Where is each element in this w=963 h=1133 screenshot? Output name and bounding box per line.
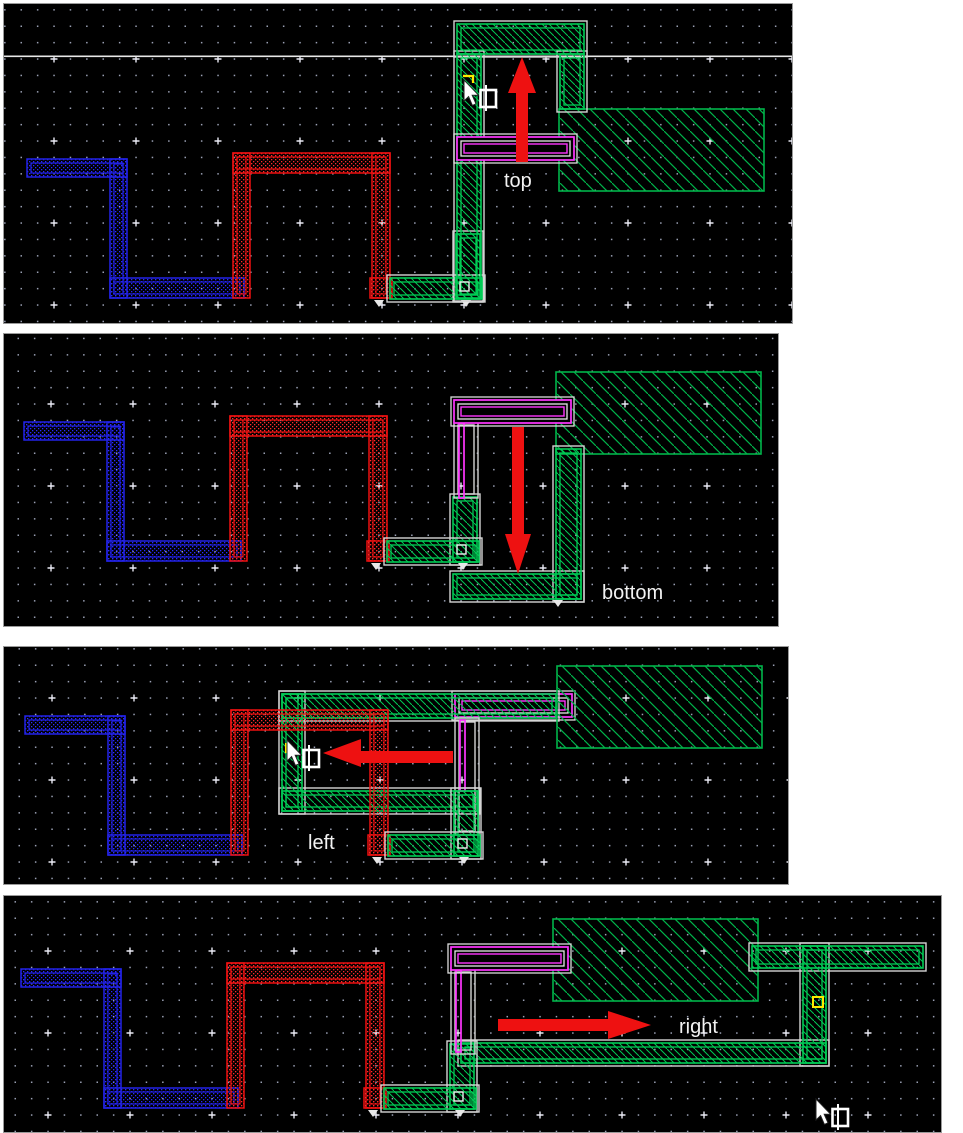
direction-label: left <box>308 832 335 854</box>
magenta-wire[interactable] <box>454 134 577 163</box>
figure-stretch-directions: top <box>0 0 963 1133</box>
layout-canvas-left[interactable]: left <box>3 646 789 885</box>
layout-canvas-right[interactable]: right <box>3 895 942 1133</box>
hatched-metal-rectangle[interactable] <box>557 666 762 748</box>
hatched-metal-rectangle[interactable] <box>556 372 761 454</box>
direction-label: right <box>679 1016 718 1038</box>
hatched-metal-rectangle[interactable] <box>553 919 758 1001</box>
magenta-wire[interactable] <box>448 944 571 973</box>
hatched-metal-rectangle[interactable] <box>559 109 764 191</box>
direction-label: bottom <box>602 582 663 604</box>
layout-canvas-top[interactable]: top <box>3 3 793 324</box>
direction-label: top <box>504 170 532 192</box>
magenta-wire[interactable] <box>451 397 574 426</box>
layout-canvas-bottom[interactable]: bottom <box>3 333 779 627</box>
ruler-line <box>4 56 792 58</box>
